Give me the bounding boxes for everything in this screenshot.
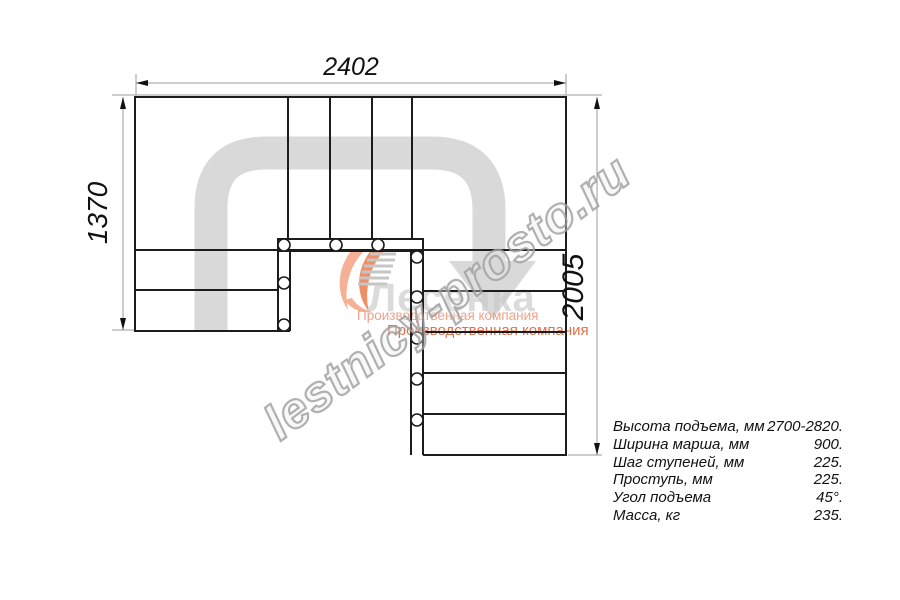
- dim-label-height-left: 1370: [82, 181, 113, 244]
- dim-label-width: 2402: [322, 53, 379, 81]
- spec-label: Проступь, мм: [613, 471, 713, 489]
- bolt-hole-icon: [330, 239, 342, 251]
- bolt-hole-icon: [411, 332, 423, 344]
- spec-label: Угол подъема: [613, 489, 711, 507]
- spec-row-step-pitch: Шаг ступеней, мм 225.: [613, 454, 843, 472]
- spec-row-flight-width: Ширина марша, мм 900.: [613, 436, 843, 454]
- bolt-hole-icon: [411, 251, 423, 263]
- bolt-hole-icon: [372, 239, 384, 251]
- spec-label: Ширина марша, мм: [613, 436, 749, 454]
- bolt-hole-icon: [278, 319, 290, 331]
- spec-label: Масса, кг: [613, 507, 680, 525]
- spec-row-mass: Масса, кг 235.: [613, 507, 843, 525]
- spec-row-angle: Угол подъема 45°.: [613, 489, 843, 507]
- dim-label-height-right: 2005: [557, 253, 590, 321]
- spec-row-rise-height: Высота подъема, мм 2700-2820.: [613, 418, 843, 436]
- spec-value: 225.: [814, 454, 843, 472]
- spec-row-tread: Проступь, мм 225.: [613, 471, 843, 489]
- stair-plan-page: Лесенка Производственная компания Произв…: [0, 0, 900, 600]
- bolt-hole-icon: [411, 414, 423, 426]
- spec-label: Шаг ступеней, мм: [613, 454, 744, 472]
- spec-value: 45°.: [816, 489, 843, 507]
- bolt-hole-icon: [278, 239, 290, 251]
- spec-label: Высота подъема, мм: [613, 418, 765, 436]
- spec-value: 235.: [814, 507, 843, 525]
- logo-tagline-1: Производственная компания: [357, 308, 538, 323]
- spec-value: 2700-2820.: [767, 418, 843, 436]
- spec-value: 900.: [814, 436, 843, 454]
- spec-table: Высота подъема, мм 2700-2820. Ширина мар…: [613, 418, 843, 525]
- bolt-hole-icon: [278, 277, 290, 289]
- bolt-hole-icon: [411, 291, 423, 303]
- bolt-hole-icon: [411, 373, 423, 385]
- spec-value: 225.: [814, 471, 843, 489]
